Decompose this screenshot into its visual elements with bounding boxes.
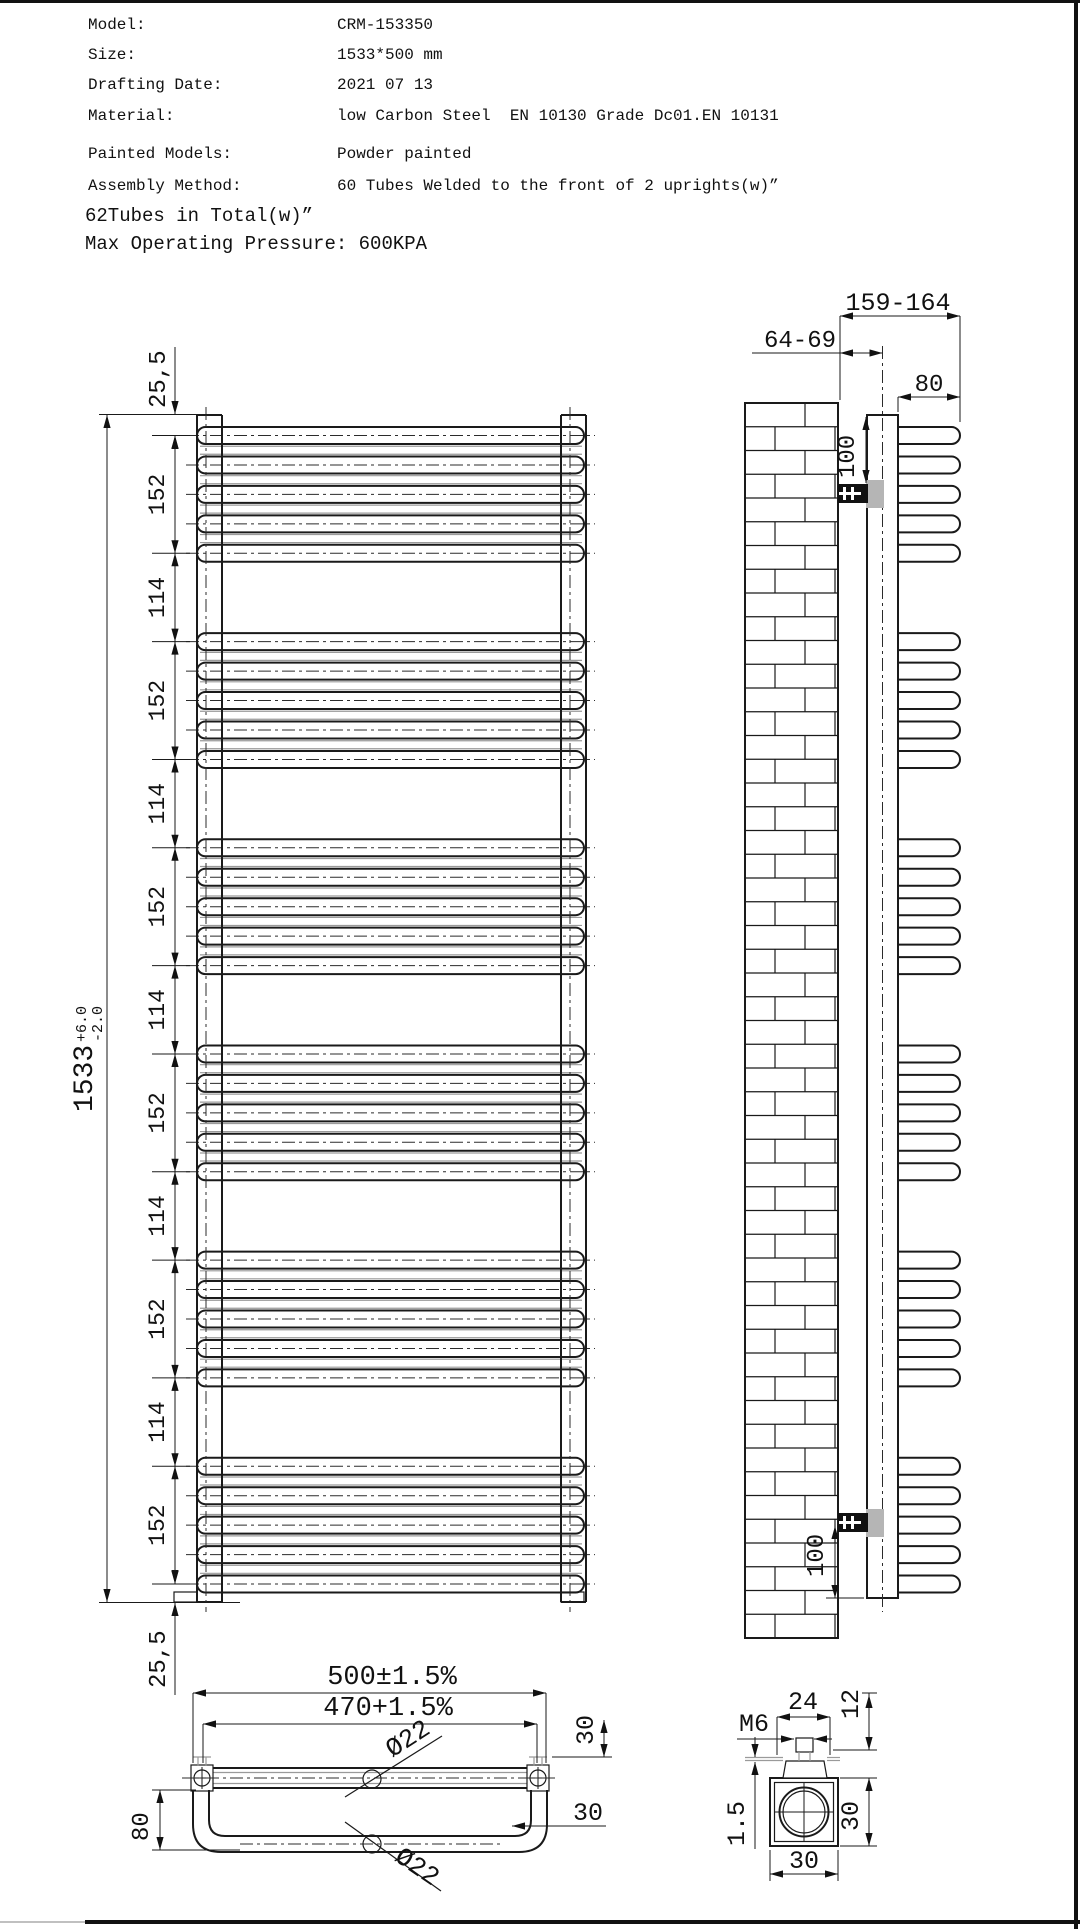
dim-chain-segment: 114 [145, 989, 171, 1030]
dim-chain-segment: 152 [145, 1504, 171, 1545]
dim-profile-height: 30 [837, 1801, 866, 1831]
title-row-label: Model: [88, 16, 146, 34]
dim-wall-to-upright: 64-69 [764, 328, 836, 355]
detail-view [745, 1738, 840, 1846]
title-note: Max Operating Pressure: 600KPA [85, 233, 427, 255]
title-row-value: low Carbon Steel EN 10130 Grade Dc01.EN … [337, 107, 779, 125]
bracket-plate [866, 1509, 884, 1537]
title-row-value: 1533*500 mm [337, 46, 443, 64]
title-row-value: 2021 07 13 [337, 76, 433, 94]
title-row-label: Drafting Date: [88, 76, 222, 94]
dim-side-offset: 30 [573, 1799, 603, 1828]
bolt [796, 1738, 813, 1752]
technical-drawing: 1533+6.0-2.025,525,515211415211415211415… [0, 0, 1080, 1929]
plan-view [182, 1757, 558, 1852]
dim-wall-thickness: 1.5 [723, 1801, 752, 1846]
plan-loop-inner [209, 1790, 531, 1836]
dim-chain-segment: 152 [145, 680, 171, 721]
dim-profile-width: 30 [789, 1847, 819, 1876]
bracket-plate [866, 480, 884, 508]
title-row-label: Assembly Method: [88, 177, 242, 195]
title-row-value: Powder painted [337, 145, 471, 163]
dim-chain-segment: 114 [145, 1401, 171, 1442]
dim-bracket-top: 100 [835, 435, 862, 478]
dim-chain-segment: 152 [145, 474, 171, 515]
front-dimensions: 1533+6.0-2.025,525,515211415211415211415… [70, 347, 240, 1695]
dim-bolt-height: 12 [837, 1689, 866, 1719]
dim-offset-top: 25,5 [146, 350, 173, 408]
dim-chain-segment: 152 [145, 886, 171, 927]
dim-chain-segment: 114 [145, 783, 171, 824]
title-row-value: 60 Tubes Welded to the front of 2 uprigh… [337, 177, 779, 195]
drawing-sheet: Model: CRM-153350 Size: 1533*500 mm Draf… [0, 0, 1080, 1929]
dim-tolerance-plus: +6.0 [74, 1006, 91, 1042]
dim-offset-bottom: 25,5 [146, 1630, 173, 1688]
dim-hole-centers: 470+1.5% [323, 1694, 453, 1724]
dim-chain-segment: 114 [145, 1195, 171, 1236]
front-view [174, 407, 595, 1612]
dim-corner-offset: 30 [572, 1715, 601, 1745]
dim-overall-height: 1533 [70, 1045, 101, 1112]
dim-overall-width: 500±1.5% [327, 1663, 457, 1693]
dim-thread: M6 [739, 1710, 769, 1739]
dim-chain-segment: 114 [145, 577, 171, 618]
dim-bracket-width: 24 [788, 1688, 818, 1717]
bracket-base [783, 1761, 827, 1778]
dim-chain-segment: 152 [145, 1298, 171, 1339]
plan-loop-outer [193, 1790, 547, 1852]
detail-dimensions: 24M61230301.5 [723, 1688, 877, 1881]
title-row-value: CRM-153350 [337, 16, 433, 34]
dim-tube-dia-bottom: Ø22 [389, 1842, 445, 1893]
title-row-label: Material: [88, 107, 174, 125]
title-row-label: Size: [88, 46, 136, 64]
side-view [745, 346, 960, 1638]
dim-chain-segment: 152 [145, 1092, 171, 1133]
dim-loop-depth-plan: 80 [129, 1812, 156, 1841]
dim-bracket-bottom: 100 [804, 1534, 831, 1577]
title-note: 62Tubes in Total(w)” [85, 205, 313, 227]
dim-tolerance-minus: -2.0 [90, 1006, 107, 1042]
dim-total-depth: 159-164 [845, 289, 950, 318]
title-row-label: Painted Models: [88, 145, 232, 163]
dim-loop-depth-side: 80 [915, 372, 944, 399]
foot-left [174, 1592, 197, 1602]
